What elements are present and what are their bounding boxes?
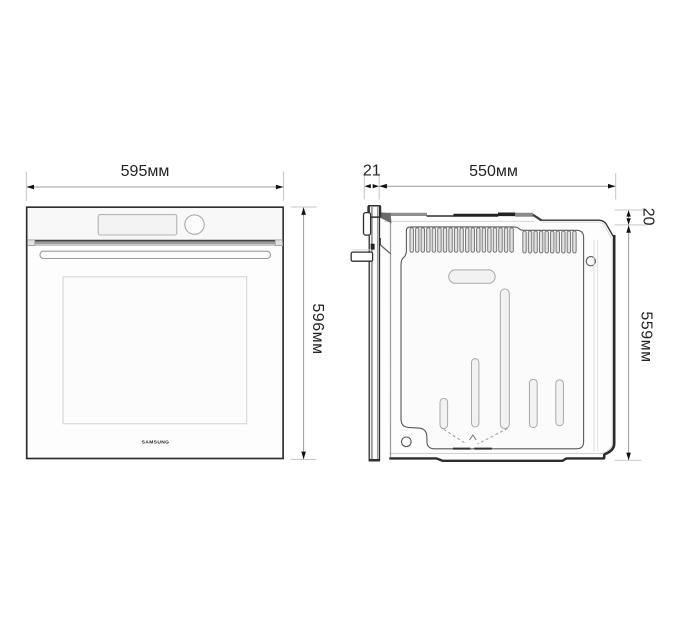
svg-text:595мм: 595мм [121, 163, 170, 180]
svg-text:21: 21 [363, 162, 381, 179]
svg-text:559мм: 559мм [638, 311, 655, 362]
svg-text:20: 20 [640, 208, 657, 226]
svg-text:596мм: 596мм [309, 303, 326, 354]
svg-text:SAMSUNG: SAMSUNG [142, 440, 170, 446]
svg-text:550мм: 550мм [469, 163, 518, 180]
